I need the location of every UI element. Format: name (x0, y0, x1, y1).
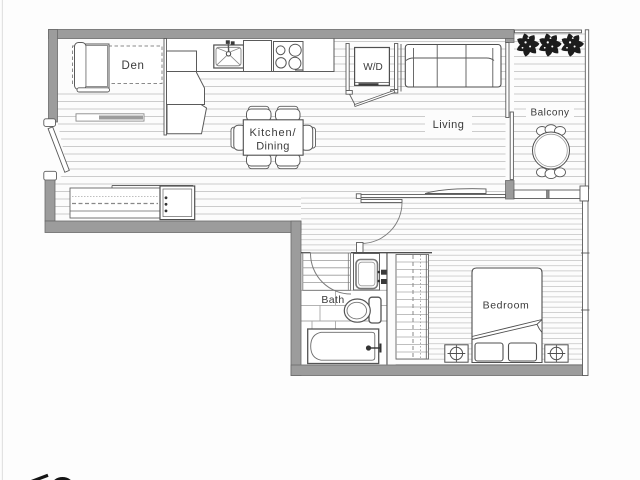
svg-text:Bedroom: Bedroom (483, 300, 530, 312)
svg-text:Kitchen/: Kitchen/ (250, 127, 297, 139)
svg-text:Dining: Dining (256, 141, 290, 153)
svg-text:W/D: W/D (363, 62, 382, 73)
svg-text:Balcony: Balcony (530, 108, 569, 119)
svg-text:Living: Living (433, 119, 465, 131)
svg-text:Bath: Bath (321, 294, 344, 306)
svg-text:Den: Den (122, 60, 145, 72)
